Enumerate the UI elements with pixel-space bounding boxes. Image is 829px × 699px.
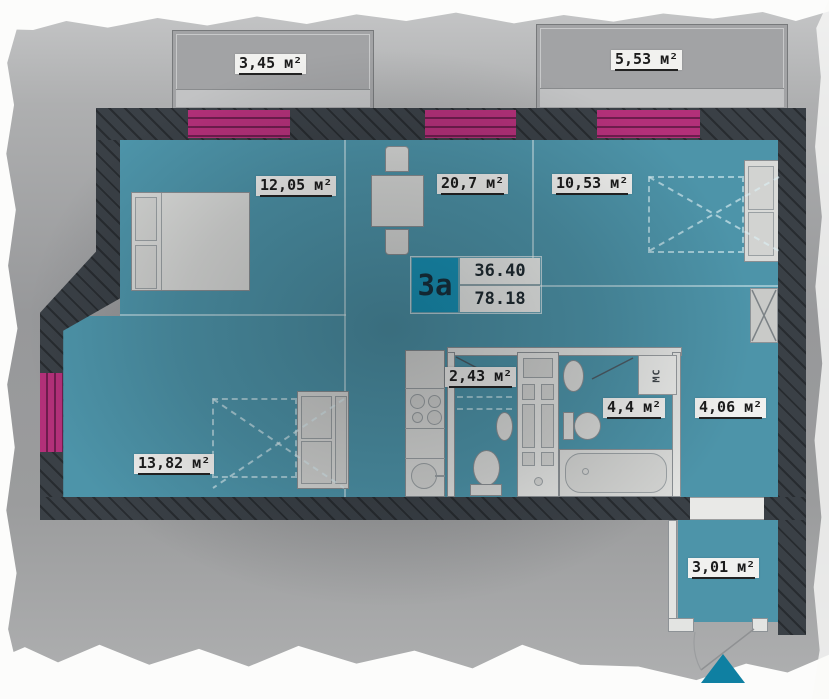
- area-label-bathroom: 4,4 м²: [603, 398, 665, 418]
- dining-chair: [385, 146, 409, 172]
- area-label-hallway: 4,06 м²: [695, 398, 766, 418]
- wc-sink: [496, 412, 513, 441]
- entry-door-jamb-right: [752, 618, 768, 632]
- shaft-unit: [522, 452, 535, 466]
- unit-number: 3а: [412, 258, 458, 312]
- entrance-arrow-icon: [701, 654, 745, 683]
- bathroom-toilet-bowl: [574, 412, 601, 440]
- entry-wall-left: [668, 520, 677, 632]
- area-label-text: 10,53 м²: [556, 174, 628, 195]
- area-label-room-bottom-left: 13,82 м²: [134, 454, 214, 474]
- sofa-cushion: [748, 212, 774, 256]
- area-label-balcony-right: 5,53 м²: [611, 50, 682, 70]
- shaft-unit: [523, 358, 553, 378]
- bathtub-basin: [565, 453, 667, 493]
- shaft-unit: [522, 384, 535, 400]
- wc-toilet-bowl: [473, 450, 500, 486]
- window-balcony-right: [597, 110, 700, 138]
- stove-burner: [427, 410, 442, 425]
- bathroom-toilet-tank: [563, 412, 574, 440]
- stove-burner: [428, 395, 441, 408]
- wall-right: [778, 140, 806, 635]
- bathtub-drain: [582, 468, 589, 475]
- wc-dashed-line: [457, 408, 512, 410]
- bed-pillow: [135, 197, 157, 241]
- bathtub: [559, 449, 673, 497]
- area-label-entry: 3,01 м²: [688, 558, 759, 578]
- shaft-drain: [534, 477, 543, 486]
- sofa-cushion: [748, 166, 774, 210]
- unit-living-area: 36.40: [460, 258, 540, 284]
- bathroom-sink: [563, 360, 584, 392]
- area-label-bedroom-left: 12,05 м²: [256, 176, 336, 196]
- utility-box-label: МС: [652, 368, 663, 382]
- area-label-living: 20,7 м²: [437, 174, 508, 194]
- vent-shaft: [750, 288, 778, 343]
- floor-plan: МС: [0, 0, 829, 699]
- wall-bottom-stub: [764, 497, 806, 520]
- area-label-text: 3,01 м²: [692, 558, 755, 579]
- sofa-bottom-left: [297, 391, 349, 489]
- partition-hallway: [532, 285, 778, 287]
- area-label-text: 20,7 м²: [441, 174, 504, 195]
- wardrobe-dashed-left: [212, 398, 297, 478]
- wc-toilet-tank: [470, 484, 502, 496]
- partition-bedroom-left: [120, 314, 346, 316]
- area-label-bedroom-right: 10,53 м²: [552, 174, 632, 194]
- counter-divider: [405, 428, 445, 429]
- unit-total-area: 78.18: [460, 286, 540, 312]
- dining-table: [371, 175, 424, 227]
- stove-burner: [410, 394, 425, 409]
- torn-edge-right: [812, 0, 829, 699]
- bed: [131, 192, 250, 291]
- counter-divider: [405, 458, 445, 459]
- dining-chair: [385, 229, 409, 255]
- shaft-unit: [541, 384, 554, 400]
- bed-pillow: [135, 245, 157, 289]
- area-label-balcony-left: 3,45 м²: [235, 54, 306, 74]
- shaft-unit: [541, 452, 554, 466]
- kitchen-sink: [411, 463, 437, 489]
- area-label-wc: 2,43 м²: [445, 367, 516, 387]
- entry-door-jamb-left: [668, 618, 694, 632]
- area-label-text: 4,4 м²: [607, 398, 661, 419]
- torn-edge-left: [0, 0, 18, 699]
- entry-threshold: [690, 498, 764, 519]
- shaft-unit: [541, 404, 554, 448]
- area-label-text: 13,82 м²: [138, 454, 210, 475]
- window-left-room: [40, 373, 63, 452]
- wc-dashed-line: [457, 396, 512, 398]
- area-label-text: 12,05 м²: [260, 176, 332, 197]
- window-balcony-left: [188, 110, 290, 138]
- stove-burner: [412, 412, 423, 423]
- unit-info-box: 3а 36.40 78.18: [410, 256, 542, 314]
- shaft-unit: [522, 404, 535, 448]
- entry-door-arc: [694, 632, 701, 670]
- balcony-left-ledge: [176, 89, 370, 107]
- area-label-text: 5,53 м²: [615, 50, 678, 71]
- bed-line: [161, 193, 162, 290]
- sofa-backrest: [335, 396, 347, 484]
- sofa-cushion: [301, 441, 332, 484]
- sofa-right: [744, 160, 781, 262]
- area-label-text: 4,06 м²: [699, 398, 762, 419]
- sofa-cushion: [301, 396, 332, 439]
- counter-divider: [405, 388, 445, 389]
- utility-box: МС: [638, 355, 677, 395]
- area-label-text: 3,45 м²: [239, 54, 302, 75]
- window-living: [425, 110, 516, 138]
- kitchen-sink-tap: [435, 475, 445, 477]
- wall-bottom: [40, 497, 690, 520]
- balcony-right-ledge: [540, 88, 784, 107]
- unit-areas: 36.40 78.18: [460, 258, 540, 312]
- wardrobe-dashed-right: [648, 176, 744, 253]
- area-label-text: 2,43 м²: [449, 367, 512, 388]
